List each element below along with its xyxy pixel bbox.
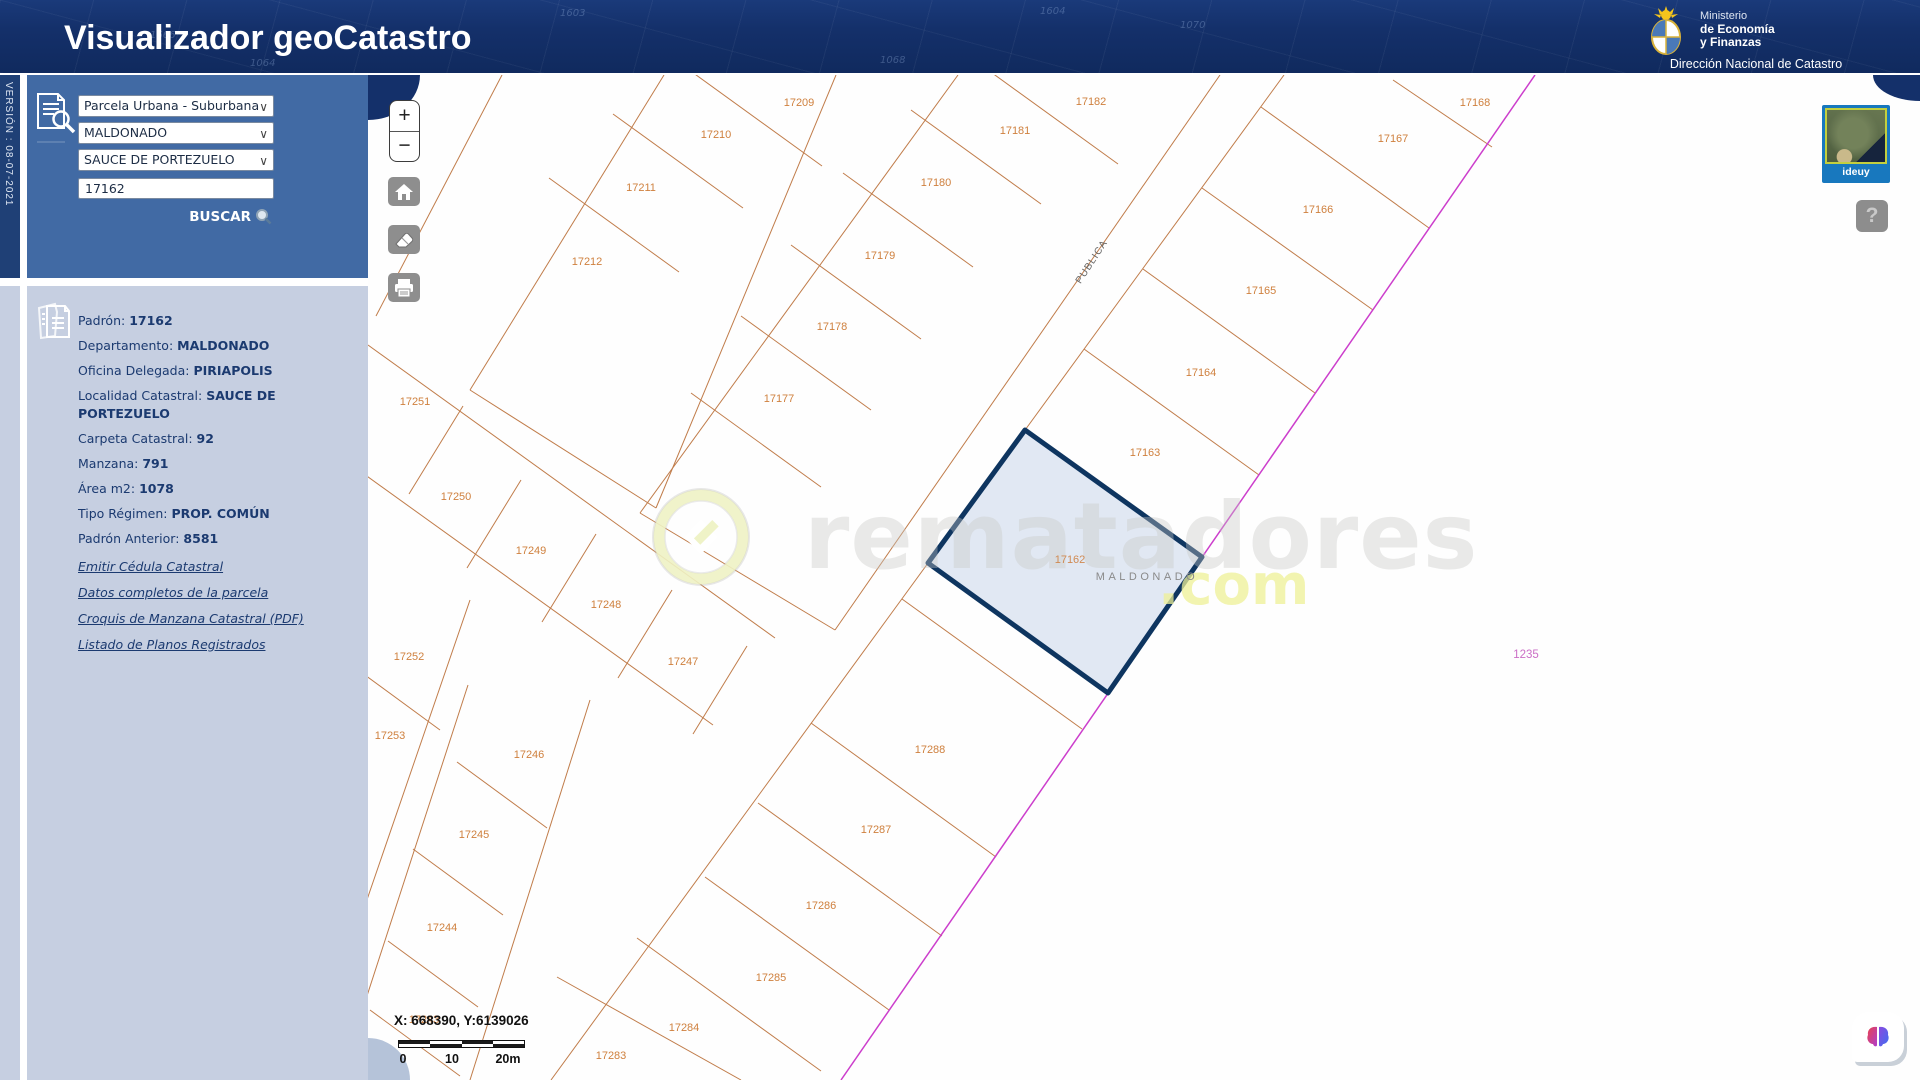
info-field: Padrón: 17162 <box>78 312 350 330</box>
chevron-down-icon: ∨ <box>259 124 268 144</box>
print-button[interactable] <box>388 273 420 302</box>
buscar-label: BUSCAR <box>189 209 251 225</box>
printer-icon <box>393 278 415 298</box>
home-extent-button[interactable] <box>388 177 420 206</box>
clear-selection-button[interactable] <box>388 225 420 254</box>
version-label: VERSIÓN : 08-07-2021 <box>3 82 14 207</box>
assistant-bubble[interactable] <box>1852 1012 1904 1062</box>
header: 160316041064166610681070 Visualizador ge… <box>0 0 1920 73</box>
zoom-control: + − <box>389 100 420 162</box>
documents-stack-icon <box>33 300 79 358</box>
ideuy-basemap-toggle[interactable]: ideuy <box>1822 105 1890 183</box>
scale-bar <box>398 1040 525 1048</box>
selected-parcel-label: 17162 <box>1055 554 1086 566</box>
info-field: Padrón Anterior: 8581 <box>78 530 350 548</box>
document-search-icon <box>34 91 78 143</box>
chevron-down-icon: ∨ <box>259 151 268 171</box>
select-department[interactable]: MALDONADO ∨ <box>78 122 274 144</box>
boundary-parcel-label: 1235 <box>1513 649 1539 661</box>
select-parcel-type[interactable]: Parcela Urbana - Suburbana ∨ <box>78 95 274 117</box>
chevron-down-icon: ∨ <box>259 97 268 117</box>
info-field: Carpeta Catastral: 92 <box>78 430 350 448</box>
buscar-button[interactable]: BUSCAR <box>189 208 272 225</box>
home-icon <box>394 183 414 201</box>
select-department-value: MALDONADO <box>84 125 167 140</box>
version-strip-lower <box>0 286 20 1080</box>
brain-icon <box>1865 1025 1891 1049</box>
info-field: Localidad Catastral: SAUCE DE PORTEZUELO <box>78 387 350 422</box>
geocatastro-app: 160316041064166610681070 Visualizador ge… <box>0 0 1920 1080</box>
select-locality[interactable]: SAUCE DE PORTEZUELO ∨ <box>78 149 274 171</box>
info-link[interactable]: Croquis de Manzana Catastral (PDF) <box>78 611 350 626</box>
ideuy-label: ideuy <box>1825 164 1887 180</box>
scale-tick-10: 10 <box>445 1052 459 1066</box>
scale-tick-0: 0 <box>400 1052 407 1066</box>
search-panel: Parcela Urbana - Suburbana ∨ MALDONADO ∨… <box>27 75 368 278</box>
info-field: Área m2: 1078 <box>78 480 350 498</box>
info-field: Tipo Régimen: PROP. COMÚN <box>78 505 350 523</box>
scale-tick-20: 20m <box>495 1052 520 1066</box>
parcel-info-panel: Padrón: 17162Departamento: MALDONADOOfic… <box>27 286 368 1080</box>
selected-parcel-locality-label: MALDONADO <box>1096 571 1198 583</box>
info-link[interactable]: Emitir Cédula Catastral <box>78 559 350 574</box>
ministry-block: Ministerio de Economía y Finanzas Direcc… <box>1638 0 1868 73</box>
select-parcel-type-value: Parcela Urbana - Suburbana <box>84 98 259 113</box>
parcel-info-fields: Padrón: 17162Departamento: MALDONADOOfic… <box>78 312 350 663</box>
select-locality-value: SAUCE DE PORTEZUELO <box>84 152 235 167</box>
info-link[interactable]: Listado de Planos Registrados <box>78 637 350 652</box>
page-title: Visualizador geoCatastro <box>64 19 472 58</box>
info-field: Oficina Delegada: PIRIAPOLIS <box>78 362 350 380</box>
uruguay-coat-of-arms-icon <box>1644 6 1688 58</box>
map-canvas[interactable]: rematadores .com 17213172091721017211172… <box>368 75 1920 1080</box>
zoom-in-button[interactable]: + <box>390 101 419 132</box>
magnifier-icon <box>255 208 272 225</box>
padron-search-input[interactable] <box>78 178 274 199</box>
help-button[interactable]: ? <box>1856 200 1888 232</box>
ministry-line3: y Finanzas <box>1700 36 1775 49</box>
ministry-subtitle: Dirección Nacional de Catastro <box>1626 57 1886 71</box>
eraser-icon <box>393 231 415 249</box>
info-link[interactable]: Datos completos de la parcela <box>78 585 350 600</box>
cursor-coordinates: X: 668390, Y:6139026 <box>394 1013 529 1028</box>
info-field: Manzana: 791 <box>78 455 350 473</box>
ideuy-thumbnail <box>1825 108 1887 164</box>
zoom-out-button[interactable]: − <box>390 132 419 162</box>
info-field: Departamento: MALDONADO <box>78 337 350 355</box>
